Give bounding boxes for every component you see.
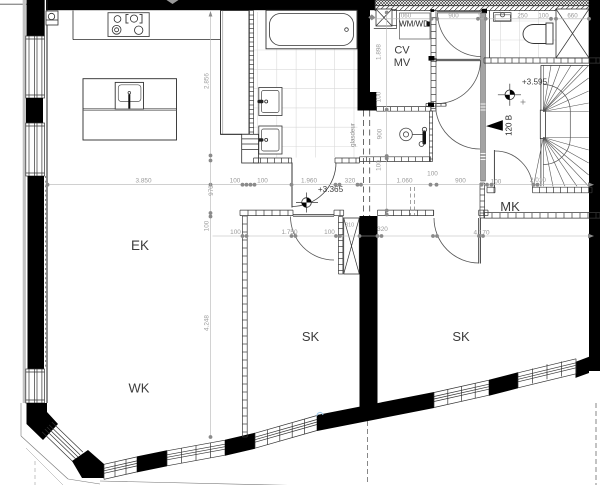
svg-text:MK: MK xyxy=(500,199,520,214)
svg-text:1.898: 1.898 xyxy=(375,44,382,60)
svg-text:970: 970 xyxy=(208,185,215,196)
svg-text:1.960: 1.960 xyxy=(301,178,317,185)
svg-text:310: 310 xyxy=(345,223,354,229)
svg-text:CV: CV xyxy=(394,45,410,57)
svg-text:MV: MV xyxy=(394,57,411,69)
svg-text:900: 900 xyxy=(376,128,383,139)
svg-text:100: 100 xyxy=(204,220,211,231)
svg-text:100: 100 xyxy=(230,229,241,236)
svg-text:320: 320 xyxy=(345,178,356,185)
svg-text:100: 100 xyxy=(257,178,268,185)
svg-text:660: 660 xyxy=(567,13,578,20)
svg-text:120 B: 120 B xyxy=(504,115,513,136)
svg-text:100: 100 xyxy=(375,160,382,171)
svg-text:100: 100 xyxy=(230,178,241,185)
svg-text:060: 060 xyxy=(401,13,412,20)
svg-text:100: 100 xyxy=(324,229,335,236)
svg-text:1.060: 1.060 xyxy=(397,178,413,185)
svg-text:100: 100 xyxy=(538,13,549,20)
svg-text:EK: EK xyxy=(131,238,149,253)
svg-text:4.248: 4.248 xyxy=(204,315,211,331)
svg-text:100: 100 xyxy=(427,171,438,178)
svg-text:900: 900 xyxy=(455,178,466,185)
svg-text:WM/WD: WM/WD xyxy=(399,19,429,28)
svg-text:+3.595: +3.595 xyxy=(522,78,548,87)
svg-text:100: 100 xyxy=(375,91,382,102)
svg-text:320: 320 xyxy=(377,226,388,233)
svg-text:SK: SK xyxy=(452,329,470,344)
svg-text:900: 900 xyxy=(448,13,459,20)
svg-text:glasdeur: glasdeur xyxy=(350,123,357,147)
svg-text:250: 250 xyxy=(517,13,528,20)
svg-text:2.856: 2.856 xyxy=(204,73,211,89)
svg-text:SK: SK xyxy=(302,329,320,344)
svg-text:WK: WK xyxy=(129,381,150,396)
svg-text:3.850: 3.850 xyxy=(136,178,152,185)
